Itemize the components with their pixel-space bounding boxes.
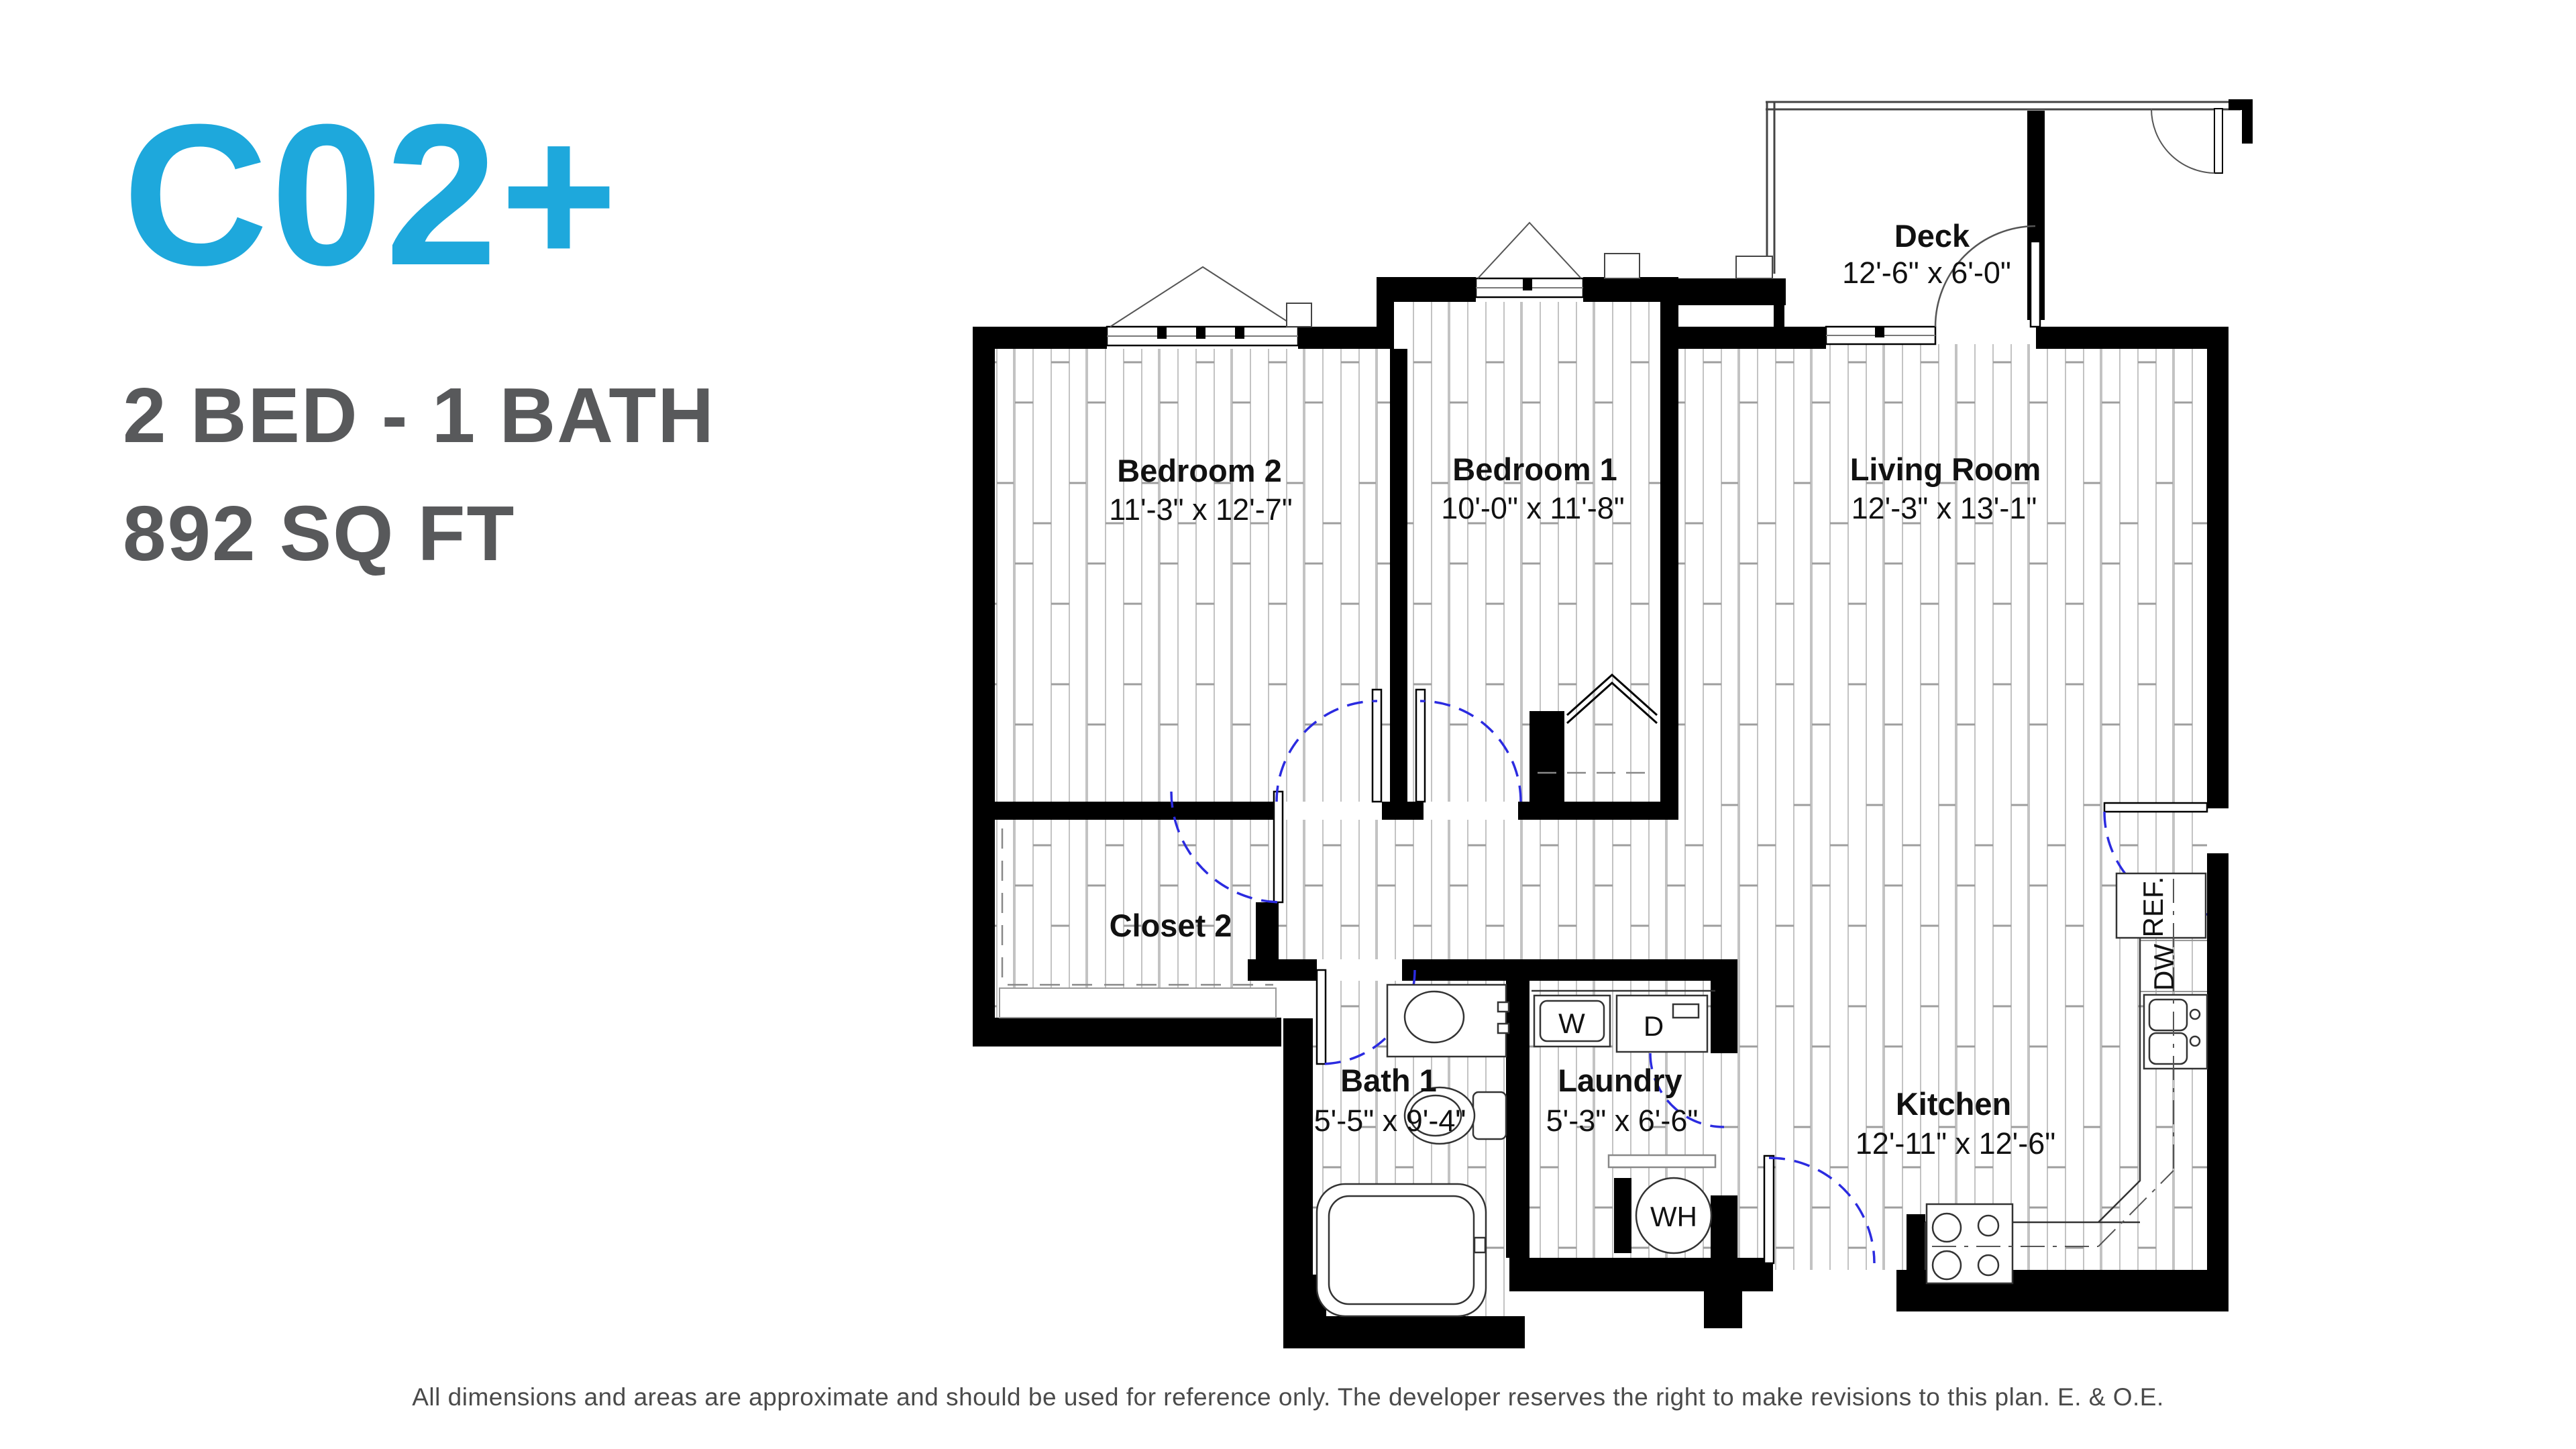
bath1-door-leaf: [1317, 970, 1326, 1064]
bedroom1-door-leaf: [1416, 690, 1425, 802]
burner-icon: [1978, 1255, 1998, 1275]
closet2-shelf: [1000, 988, 1276, 1018]
label-living-room: Living Room: [1850, 451, 2041, 487]
dims-bedroom2: 11'-3" x 12'-7": [1109, 492, 1292, 527]
dims-living-room: 12'-3" x 13'-1": [1851, 491, 2037, 525]
label-kitchen: Kitchen: [1896, 1086, 2011, 1122]
floor-plan-drawing: Deck 12'-6" x 6'-0" Bedroom 2 11'-3" x 1…: [0, 0, 2576, 1449]
deck-railing: [1766, 102, 2241, 274]
sink-basin-icon: [1405, 991, 1464, 1042]
label-bedroom2: Bedroom 2: [1117, 453, 1282, 488]
faucet-handle: [2190, 1010, 2200, 1019]
burner-icon: [1978, 1216, 1998, 1236]
faucet-icon: [1498, 1024, 1509, 1033]
burner-icon: [1933, 1214, 1961, 1242]
entry-hall-door-leaf: [1764, 1156, 1774, 1263]
unit-entry-door-leaf: [2104, 803, 2207, 812]
dims-bath1: 5'-5" x 9'-4": [1314, 1104, 1466, 1138]
deck-gate-door: [2151, 109, 2222, 173]
label-closet2: Closet 2: [1110, 908, 1232, 943]
bedroom2-window: [1107, 267, 1298, 345]
vent-icon: [1605, 254, 1640, 278]
toilet-tank-icon: [1473, 1092, 1506, 1139]
closet2-door-leaf: [1274, 792, 1283, 902]
faucet-icon: [1498, 1002, 1509, 1012]
dryer-control: [1673, 1004, 1699, 1018]
label-laundry: Laundry: [1558, 1063, 1682, 1098]
disclaimer-text: All dimensions and areas are approximate…: [0, 1383, 2576, 1411]
vent-icon: [1736, 256, 1772, 278]
floorplan-page: C02+ 2 BED - 1 BATH 892 SQ FT: [0, 0, 2576, 1449]
label-deck: Deck: [1894, 218, 1970, 254]
dims-laundry: 5'-3" x 6'-6": [1546, 1104, 1699, 1138]
wh-shelf: [1609, 1155, 1715, 1167]
bedroom1-window: [1476, 223, 1583, 297]
vent-icon: [1287, 303, 1311, 327]
bedroom2-door-leaf: [1373, 690, 1381, 802]
bathtub-inner: [1329, 1196, 1474, 1304]
label-water-heater: WH: [1650, 1201, 1697, 1232]
exterior-doors: [1935, 109, 2222, 327]
dims-bedroom1: 10'-0" x 11'-8": [1441, 491, 1624, 525]
casement-swing-icon: [1478, 223, 1581, 278]
label-refrigerator: REF.: [2137, 876, 2169, 937]
label-washer: W: [1558, 1008, 1585, 1039]
casement-swing-icon: [1110, 267, 1295, 327]
tub-faucet-icon: [1474, 1238, 1485, 1252]
sink-basin-2: [2149, 1033, 2187, 1064]
label-bedroom1: Bedroom 1: [1452, 451, 1617, 487]
sink-basin-1: [2149, 1000, 2187, 1030]
dims-kitchen: 12'-11" x 12'-6": [1856, 1126, 2055, 1161]
label-bath1: Bath 1: [1340, 1063, 1437, 1098]
faucet-handle: [2190, 1036, 2200, 1046]
burner-icon: [1933, 1251, 1961, 1279]
living-room-window: [1826, 327, 1935, 344]
floor-bedroom2: [995, 349, 1390, 802]
label-dryer: D: [1644, 1010, 1664, 1042]
label-dishwasher: DW: [2148, 944, 2180, 991]
dims-deck: 12'-6" x 6'-0": [1842, 256, 2011, 290]
